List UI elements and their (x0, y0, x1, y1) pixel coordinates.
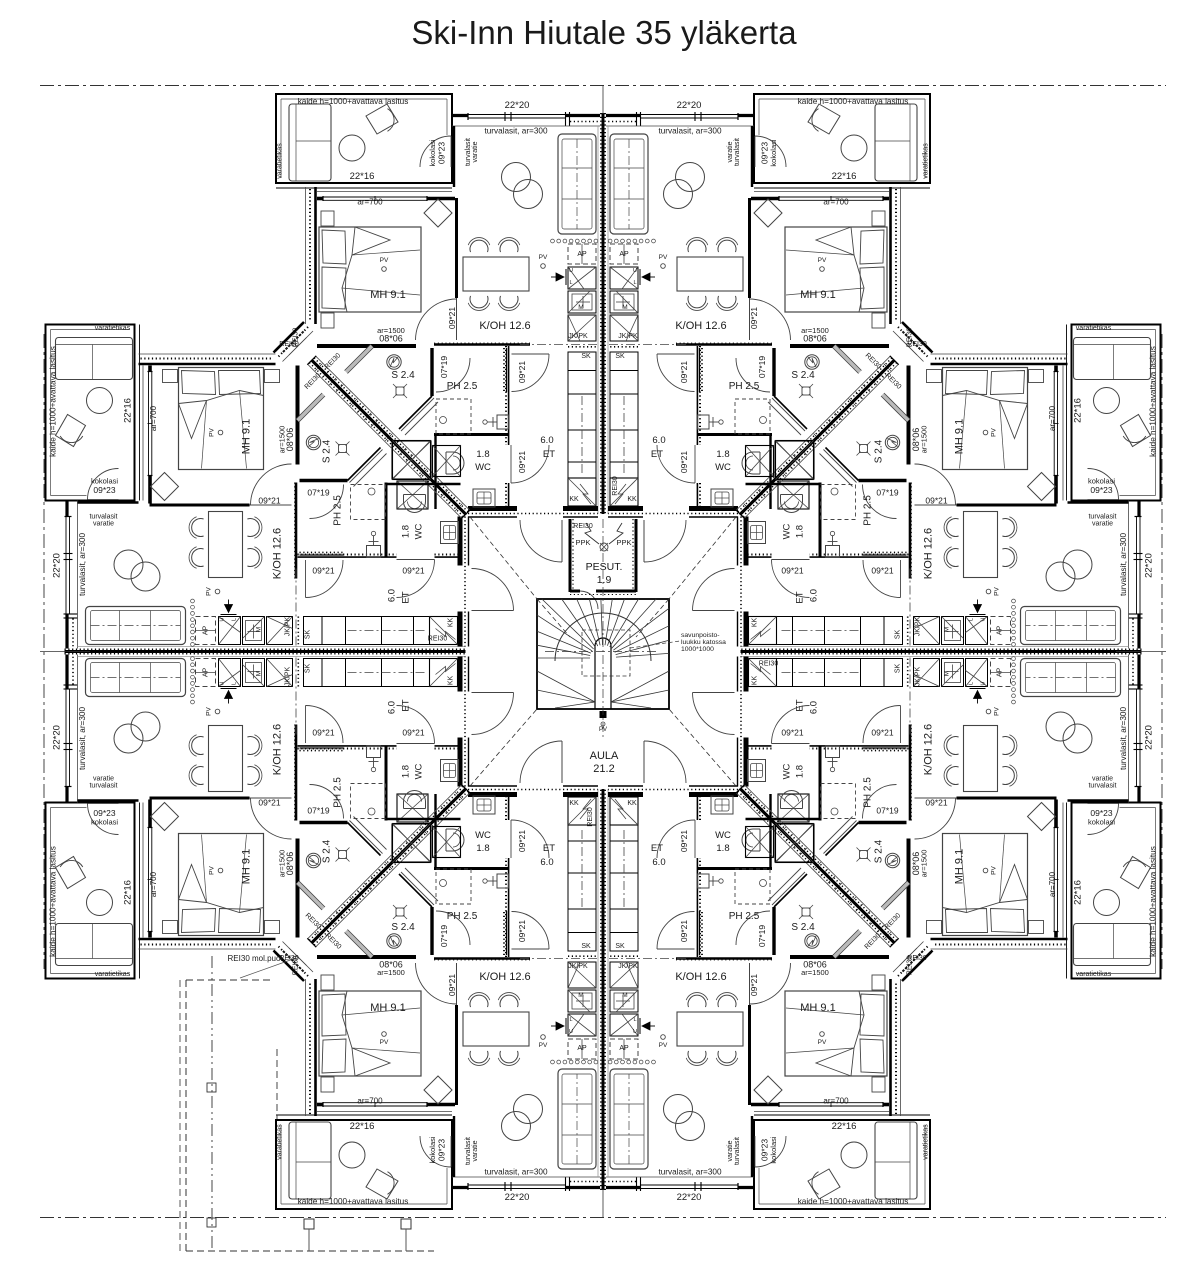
svg-text:6.0: 6.0 (540, 435, 553, 446)
svg-text:K/OH 12.6: K/OH 12.6 (923, 724, 935, 775)
svg-text:M: M (578, 992, 583, 999)
svg-text:varatie: varatie (727, 1140, 734, 1161)
svg-text:09*21: 09*21 (312, 727, 334, 737)
svg-text:08*06: 08*06 (911, 428, 921, 452)
svg-text:22*20: 22*20 (677, 1192, 702, 1203)
svg-text:JK/PK: JK/PK (915, 666, 922, 686)
svg-text:PV: PV (539, 254, 548, 261)
svg-text:varatietikas: varatietikas (1076, 971, 1112, 978)
svg-text:PH 2.5: PH 2.5 (863, 777, 874, 808)
svg-text:PPK: PPK (616, 538, 631, 547)
svg-text:09*21: 09*21 (679, 920, 689, 942)
svg-text:AP: AP (203, 626, 210, 636)
svg-text:JK/PK: JK/PK (568, 963, 588, 970)
svg-text:1.8: 1.8 (476, 449, 489, 460)
svg-text:6.0: 6.0 (387, 589, 398, 602)
svg-text:1.8: 1.8 (794, 765, 805, 778)
svg-text:kaide h=1000+avattava lasitu: kaide h=1000+avattava lasitus (49, 346, 58, 457)
svg-text:turvalasit: turvalasit (734, 1137, 741, 1165)
svg-text:6.0: 6.0 (540, 857, 553, 868)
svg-text:PPK: PPK (575, 538, 590, 547)
svg-text:SK: SK (305, 664, 312, 674)
svg-text:U: U (220, 617, 226, 621)
svg-text:09*21: 09*21 (312, 566, 334, 576)
svg-text:07*19: 07*19 (757, 356, 767, 378)
svg-text:M: M (943, 627, 950, 632)
svg-text:U: U (981, 617, 987, 621)
svg-text:WC: WC (715, 830, 731, 841)
svg-text:REI30: REI30 (293, 328, 300, 348)
svg-text:ar=700: ar=700 (823, 198, 849, 207)
svg-text:M: M (578, 304, 583, 311)
svg-text:09*21: 09*21 (925, 496, 947, 506)
svg-text:PESUT.: PESUT. (586, 561, 623, 573)
svg-text:09*21: 09*21 (781, 727, 803, 737)
svg-text:ar=700: ar=700 (1048, 405, 1057, 431)
svg-text:09*21: 09*21 (871, 566, 893, 576)
svg-text:L: L (232, 618, 238, 621)
svg-text:22*20: 22*20 (52, 553, 63, 578)
svg-text:PV: PV (209, 866, 216, 875)
svg-text:22*20: 22*20 (505, 100, 530, 111)
svg-text:L: L (569, 280, 572, 286)
svg-text:PV: PV (599, 727, 607, 733)
svg-text:22*16: 22*16 (1072, 880, 1083, 905)
svg-text:MH 9.1: MH 9.1 (954, 849, 966, 884)
svg-text:MH 9.1: MH 9.1 (800, 289, 835, 301)
svg-text:K/OH 12.6: K/OH 12.6 (272, 724, 284, 775)
svg-text:ar=700: ar=700 (357, 198, 383, 207)
svg-text:ET: ET (543, 843, 555, 854)
svg-text:REI30: REI30 (907, 956, 914, 976)
svg-text:AP: AP (203, 668, 210, 678)
svg-text:09*21: 09*21 (447, 974, 457, 996)
svg-text:M: M (622, 992, 627, 999)
svg-text:1.8: 1.8 (401, 765, 412, 778)
svg-text:PH 2.5: PH 2.5 (729, 911, 760, 922)
svg-text:09*21: 09*21 (517, 451, 527, 473)
svg-text:PV: PV (659, 1042, 668, 1049)
svg-text:S 2.4: S 2.4 (791, 922, 815, 933)
svg-text:KK: KK (752, 618, 759, 628)
svg-text:turvalasit, ar=300: turvalasit, ar=300 (484, 1168, 547, 1177)
svg-text:REI30: REI30 (428, 636, 448, 643)
svg-text:JK/PK: JK/PK (618, 333, 638, 340)
svg-text:KK: KK (569, 496, 579, 503)
svg-text:REI30: REI30 (293, 956, 300, 976)
svg-text:PV: PV (990, 428, 997, 437)
svg-text:L: L (633, 1017, 636, 1023)
svg-text:REI30: REI30 (587, 807, 594, 827)
svg-text:1.9: 1.9 (597, 574, 612, 586)
svg-text:22*16: 22*16 (832, 171, 857, 182)
svg-text:K/OH 12.6: K/OH 12.6 (923, 528, 935, 579)
svg-text:MH 9.1: MH 9.1 (954, 419, 966, 454)
svg-text:21.2: 21.2 (593, 763, 614, 775)
svg-text:kokolasi: kokolasi (769, 1136, 778, 1163)
svg-text:K/OH 12.6: K/OH 12.6 (479, 971, 530, 983)
svg-text:kokolasi: kokolasi (1088, 817, 1115, 826)
svg-text:09*21: 09*21 (871, 727, 893, 737)
svg-text:SK: SK (615, 353, 625, 360)
svg-text:varatie: varatie (727, 141, 734, 162)
svg-text:PV: PV (818, 257, 827, 264)
svg-text:22*20: 22*20 (505, 1192, 530, 1203)
svg-text:PH 2.5: PH 2.5 (447, 381, 478, 392)
svg-text:JK/PK: JK/PK (915, 616, 922, 636)
svg-text:PH 2.5: PH 2.5 (332, 777, 343, 808)
svg-text:JK/PK: JK/PK (618, 963, 638, 970)
svg-text:M: M (256, 671, 263, 676)
svg-text:kokolasi: kokolasi (769, 139, 778, 166)
svg-text:09*21: 09*21 (517, 361, 527, 383)
svg-text:PH 2.5: PH 2.5 (447, 911, 478, 922)
svg-text:ET: ET (794, 591, 805, 603)
svg-text:MH 9.1: MH 9.1 (241, 849, 253, 884)
svg-text:L: L (969, 618, 975, 621)
svg-text:22*20: 22*20 (1143, 553, 1154, 578)
svg-text:REI30: REI30 (612, 476, 619, 496)
svg-text:SK: SK (581, 943, 591, 950)
svg-text:JK/PK: JK/PK (285, 616, 292, 636)
svg-text:09*23: 09*23 (1090, 485, 1112, 495)
svg-text:turvalasit, ar=300: turvalasit, ar=300 (484, 127, 547, 136)
svg-text:turvalasit: turvalasit (89, 514, 117, 521)
svg-text:22*16: 22*16 (832, 1121, 857, 1132)
svg-text:kaide h=1000+avattava lasitu: kaide h=1000+avattava lasitus (298, 97, 409, 106)
svg-text:09*23: 09*23 (759, 1139, 769, 1161)
svg-text:6.0: 6.0 (652, 435, 665, 446)
svg-text:ar=700: ar=700 (823, 1096, 849, 1105)
svg-text:ET: ET (401, 699, 412, 711)
svg-text:varatie: varatie (472, 141, 479, 162)
svg-text:S 2.4: S 2.4 (391, 922, 415, 933)
svg-text:6.0: 6.0 (808, 701, 819, 714)
svg-text:09*23: 09*23 (437, 1139, 447, 1161)
svg-text:6.0: 6.0 (652, 857, 665, 868)
svg-text:S 2.4: S 2.4 (791, 370, 815, 381)
svg-text:U: U (220, 681, 226, 685)
svg-text:varatie: varatie (1092, 776, 1113, 783)
svg-text:SK: SK (895, 630, 902, 640)
svg-text:09*21: 09*21 (679, 361, 689, 383)
svg-text:L: L (969, 682, 975, 685)
svg-text:varatietikas: varatietikas (95, 971, 131, 978)
svg-text:PV: PV (659, 254, 668, 261)
svg-text:PV: PV (993, 587, 1000, 596)
svg-text:09*23: 09*23 (437, 142, 447, 164)
svg-text:U: U (633, 1029, 637, 1035)
svg-text:07*19: 07*19 (307, 488, 329, 498)
svg-text:luukku katossa: luukku katossa (681, 639, 726, 646)
svg-text:ar=700: ar=700 (149, 871, 158, 897)
svg-text:kaide h=1000+avattava lasitu: kaide h=1000+avattava lasitus (798, 97, 909, 106)
svg-text:22*16: 22*16 (123, 398, 134, 423)
svg-text:ET: ET (543, 449, 555, 460)
svg-text:varatie: varatie (93, 521, 114, 528)
svg-text:turvalasit: turvalasit (465, 1137, 472, 1165)
svg-text:WC: WC (781, 523, 792, 539)
svg-text:turvalasit: turvalasit (89, 783, 117, 790)
svg-text:K/OH 12.6: K/OH 12.6 (272, 528, 284, 579)
svg-text:varatie: varatie (472, 1140, 479, 1161)
svg-text:22*16: 22*16 (1072, 398, 1083, 423)
svg-text:ET: ET (401, 591, 412, 603)
svg-text:KK: KK (448, 676, 455, 686)
svg-text:PH 2.5: PH 2.5 (332, 495, 343, 526)
svg-text:07*19: 07*19 (307, 805, 329, 815)
svg-text:turvalasit: turvalasit (1088, 514, 1116, 521)
svg-text:08*06: 08*06 (285, 852, 295, 876)
svg-text:07*19: 07*19 (876, 805, 898, 815)
svg-text:U: U (569, 1029, 573, 1035)
svg-text:ET: ET (651, 449, 663, 460)
svg-text:AP: AP (619, 1045, 629, 1052)
svg-text:KK: KK (627, 800, 637, 807)
svg-text:U: U (569, 268, 573, 274)
svg-text:REI30 mol.puol.: REI30 mol.puol. (228, 954, 285, 963)
svg-text:turvalasit, ar=300: turvalasit, ar=300 (78, 707, 87, 770)
svg-text:REI30: REI30 (759, 661, 779, 668)
svg-text:PV: PV (206, 587, 213, 596)
svg-text:PH 2.5: PH 2.5 (729, 381, 760, 392)
svg-text:1.8: 1.8 (401, 525, 412, 538)
svg-text:varatietikas: varatietikas (923, 1124, 930, 1160)
svg-text:turvalasit: turvalasit (734, 138, 741, 166)
svg-text:KK: KK (569, 800, 579, 807)
svg-text:S 2.4: S 2.4 (391, 370, 415, 381)
svg-text:PV: PV (818, 1039, 827, 1046)
svg-text:M: M (256, 627, 263, 632)
svg-text:ar=700: ar=700 (357, 1096, 383, 1105)
svg-text:S 2.4: S 2.4 (321, 839, 332, 863)
svg-text:09*21: 09*21 (749, 307, 759, 329)
svg-text:kokolasi: kokolasi (91, 817, 118, 826)
svg-text:JK/PK: JK/PK (568, 333, 588, 340)
svg-text:AP: AP (997, 668, 1004, 678)
svg-text:PV: PV (380, 257, 389, 264)
svg-text:09*21: 09*21 (402, 727, 424, 737)
svg-text:6.0: 6.0 (808, 589, 819, 602)
svg-text:REI30: REI30 (573, 523, 593, 530)
svg-text:varatietikas: varatietikas (1076, 325, 1112, 332)
svg-text:07*19: 07*19 (757, 925, 767, 947)
svg-text:07*19: 07*19 (439, 356, 449, 378)
svg-text:AP: AP (997, 626, 1004, 636)
svg-text:S 2.4: S 2.4 (874, 839, 885, 863)
svg-text:09*23: 09*23 (759, 142, 769, 164)
svg-text:SK: SK (615, 943, 625, 950)
svg-text:WC: WC (715, 462, 731, 473)
svg-text:09*21: 09*21 (447, 307, 457, 329)
svg-text:1.8: 1.8 (476, 843, 489, 854)
svg-text:S 2.4: S 2.4 (321, 439, 332, 463)
svg-text:K/OH 12.6: K/OH 12.6 (675, 320, 726, 332)
svg-text:1.8: 1.8 (716, 843, 729, 854)
svg-text:KK: KK (627, 496, 637, 503)
svg-text:PV: PV (539, 1042, 548, 1049)
svg-text:kaide h=1000+avattava lasitu: kaide h=1000+avattava lasitus (798, 1197, 909, 1206)
svg-text:WC: WC (781, 763, 792, 779)
svg-text:22*16: 22*16 (123, 880, 134, 905)
svg-text:varatietikas: varatietikas (923, 143, 930, 179)
svg-text:09*21: 09*21 (781, 566, 803, 576)
svg-text:07*19: 07*19 (439, 925, 449, 947)
svg-text:L: L (633, 280, 636, 286)
svg-text:Ski-Inn Hiutale 35 yläkerta: Ski-Inn Hiutale 35 yläkerta (411, 14, 797, 51)
svg-text:savunpoisto-: savunpoisto- (681, 632, 720, 639)
svg-text:09*21: 09*21 (517, 920, 527, 942)
svg-text:1.8: 1.8 (716, 449, 729, 460)
svg-text:PH 2.5: PH 2.5 (863, 495, 874, 526)
svg-text:varatietikas: varatietikas (95, 325, 131, 332)
svg-text:WC: WC (414, 763, 425, 779)
svg-text:varatie: varatie (93, 776, 114, 783)
svg-text:WC: WC (414, 523, 425, 539)
svg-text:AP: AP (619, 251, 629, 258)
svg-text:09*21: 09*21 (402, 566, 424, 576)
svg-text:08*06: 08*06 (379, 333, 403, 343)
svg-text:08*06: 08*06 (285, 428, 295, 452)
svg-text:S 2.4: S 2.4 (874, 439, 885, 463)
svg-text:turvalasit: turvalasit (1088, 783, 1116, 790)
svg-text:1.8: 1.8 (794, 525, 805, 538)
svg-text:09*21: 09*21 (258, 496, 280, 506)
svg-text:WC: WC (475, 462, 491, 473)
svg-text:PV: PV (380, 1039, 389, 1046)
svg-text:1000*1000: 1000*1000 (681, 646, 714, 653)
svg-text:MH 9.1: MH 9.1 (370, 289, 405, 301)
svg-text:ar=700: ar=700 (149, 405, 158, 431)
svg-text:kaide h=1000+avattava lasitu: kaide h=1000+avattava lasitus (49, 846, 58, 957)
svg-text:07*19: 07*19 (876, 488, 898, 498)
svg-text:6.0: 6.0 (387, 701, 398, 714)
svg-text:AULA: AULA (590, 750, 619, 762)
svg-text:turvalasit, ar=300: turvalasit, ar=300 (78, 533, 87, 596)
svg-text:PV: PV (209, 428, 216, 437)
svg-text:09*21: 09*21 (679, 451, 689, 473)
svg-text:PV: PV (993, 707, 1000, 716)
svg-text:JK/PK: JK/PK (285, 666, 292, 686)
svg-text:09*21: 09*21 (258, 797, 280, 807)
svg-text:08*06: 08*06 (803, 333, 827, 343)
svg-text:MH 9.1: MH 9.1 (241, 419, 253, 454)
svg-text:22*20: 22*20 (1143, 725, 1154, 750)
svg-text:09*21: 09*21 (517, 830, 527, 852)
svg-text:ar=700: ar=700 (1048, 871, 1057, 897)
svg-text:22*16: 22*16 (350, 1121, 375, 1132)
svg-text:09*21: 09*21 (749, 974, 759, 996)
svg-text:L: L (569, 1017, 572, 1023)
svg-text:PV: PV (990, 866, 997, 875)
svg-text:varatietikas: varatietikas (277, 1124, 284, 1160)
svg-text:ET: ET (651, 843, 663, 854)
svg-text:REI30: REI30 (907, 328, 914, 348)
svg-text:kaide h=1000+avattava lasitu: kaide h=1000+avattava lasitus (298, 1197, 409, 1206)
svg-text:22*16: 22*16 (350, 171, 375, 182)
svg-text:K/OH 12.6: K/OH 12.6 (479, 320, 530, 332)
svg-text:varatietikas: varatietikas (277, 143, 284, 179)
svg-text:turvalasit, ar=300: turvalasit, ar=300 (658, 1168, 721, 1177)
svg-text:varatie: varatie (1092, 521, 1113, 528)
svg-text:kaide h=1000+avattava lasitu: kaide h=1000+avattava lasitus (1149, 846, 1158, 957)
svg-text:SK: SK (305, 630, 312, 640)
svg-text:turvalasit, ar=300: turvalasit, ar=300 (658, 127, 721, 136)
svg-text:kaide h=1000+avattava lasitu: kaide h=1000+avattava lasitus (1149, 346, 1158, 457)
svg-text:turvalasit: turvalasit (465, 138, 472, 166)
svg-text:AP: AP (577, 251, 587, 258)
svg-text:MH 9.1: MH 9.1 (370, 1002, 405, 1014)
svg-text:SK: SK (895, 664, 902, 674)
svg-text:08*06: 08*06 (911, 852, 921, 876)
svg-text:U: U (633, 268, 637, 274)
svg-text:09*23: 09*23 (93, 808, 115, 818)
svg-text:SK: SK (581, 353, 591, 360)
svg-text:KK: KK (448, 618, 455, 628)
svg-text:08*06: 08*06 (379, 960, 403, 970)
svg-text:AP: AP (577, 1045, 587, 1052)
svg-text:M: M (943, 671, 950, 676)
svg-text:MH 9.1: MH 9.1 (800, 1002, 835, 1014)
svg-text:08*06: 08*06 (803, 960, 827, 970)
svg-text:09*23: 09*23 (1090, 808, 1112, 818)
svg-text:09*21: 09*21 (679, 830, 689, 852)
svg-text:PV: PV (206, 707, 213, 716)
svg-text:ET: ET (794, 699, 805, 711)
svg-text:M: M (622, 304, 627, 311)
svg-text:22*20: 22*20 (52, 725, 63, 750)
svg-text:WC: WC (475, 830, 491, 841)
svg-text:22*20: 22*20 (677, 100, 702, 111)
svg-text:U: U (981, 681, 987, 685)
svg-text:09*21: 09*21 (925, 797, 947, 807)
svg-text:KK: KK (752, 676, 759, 686)
svg-text:turvalasit, ar=300: turvalasit, ar=300 (1119, 533, 1128, 596)
svg-text:K/OH 12.6: K/OH 12.6 (675, 971, 726, 983)
svg-text:L: L (232, 682, 238, 685)
svg-text:turvalasit, ar=300: turvalasit, ar=300 (1119, 707, 1128, 770)
svg-text:09*23: 09*23 (93, 485, 115, 495)
